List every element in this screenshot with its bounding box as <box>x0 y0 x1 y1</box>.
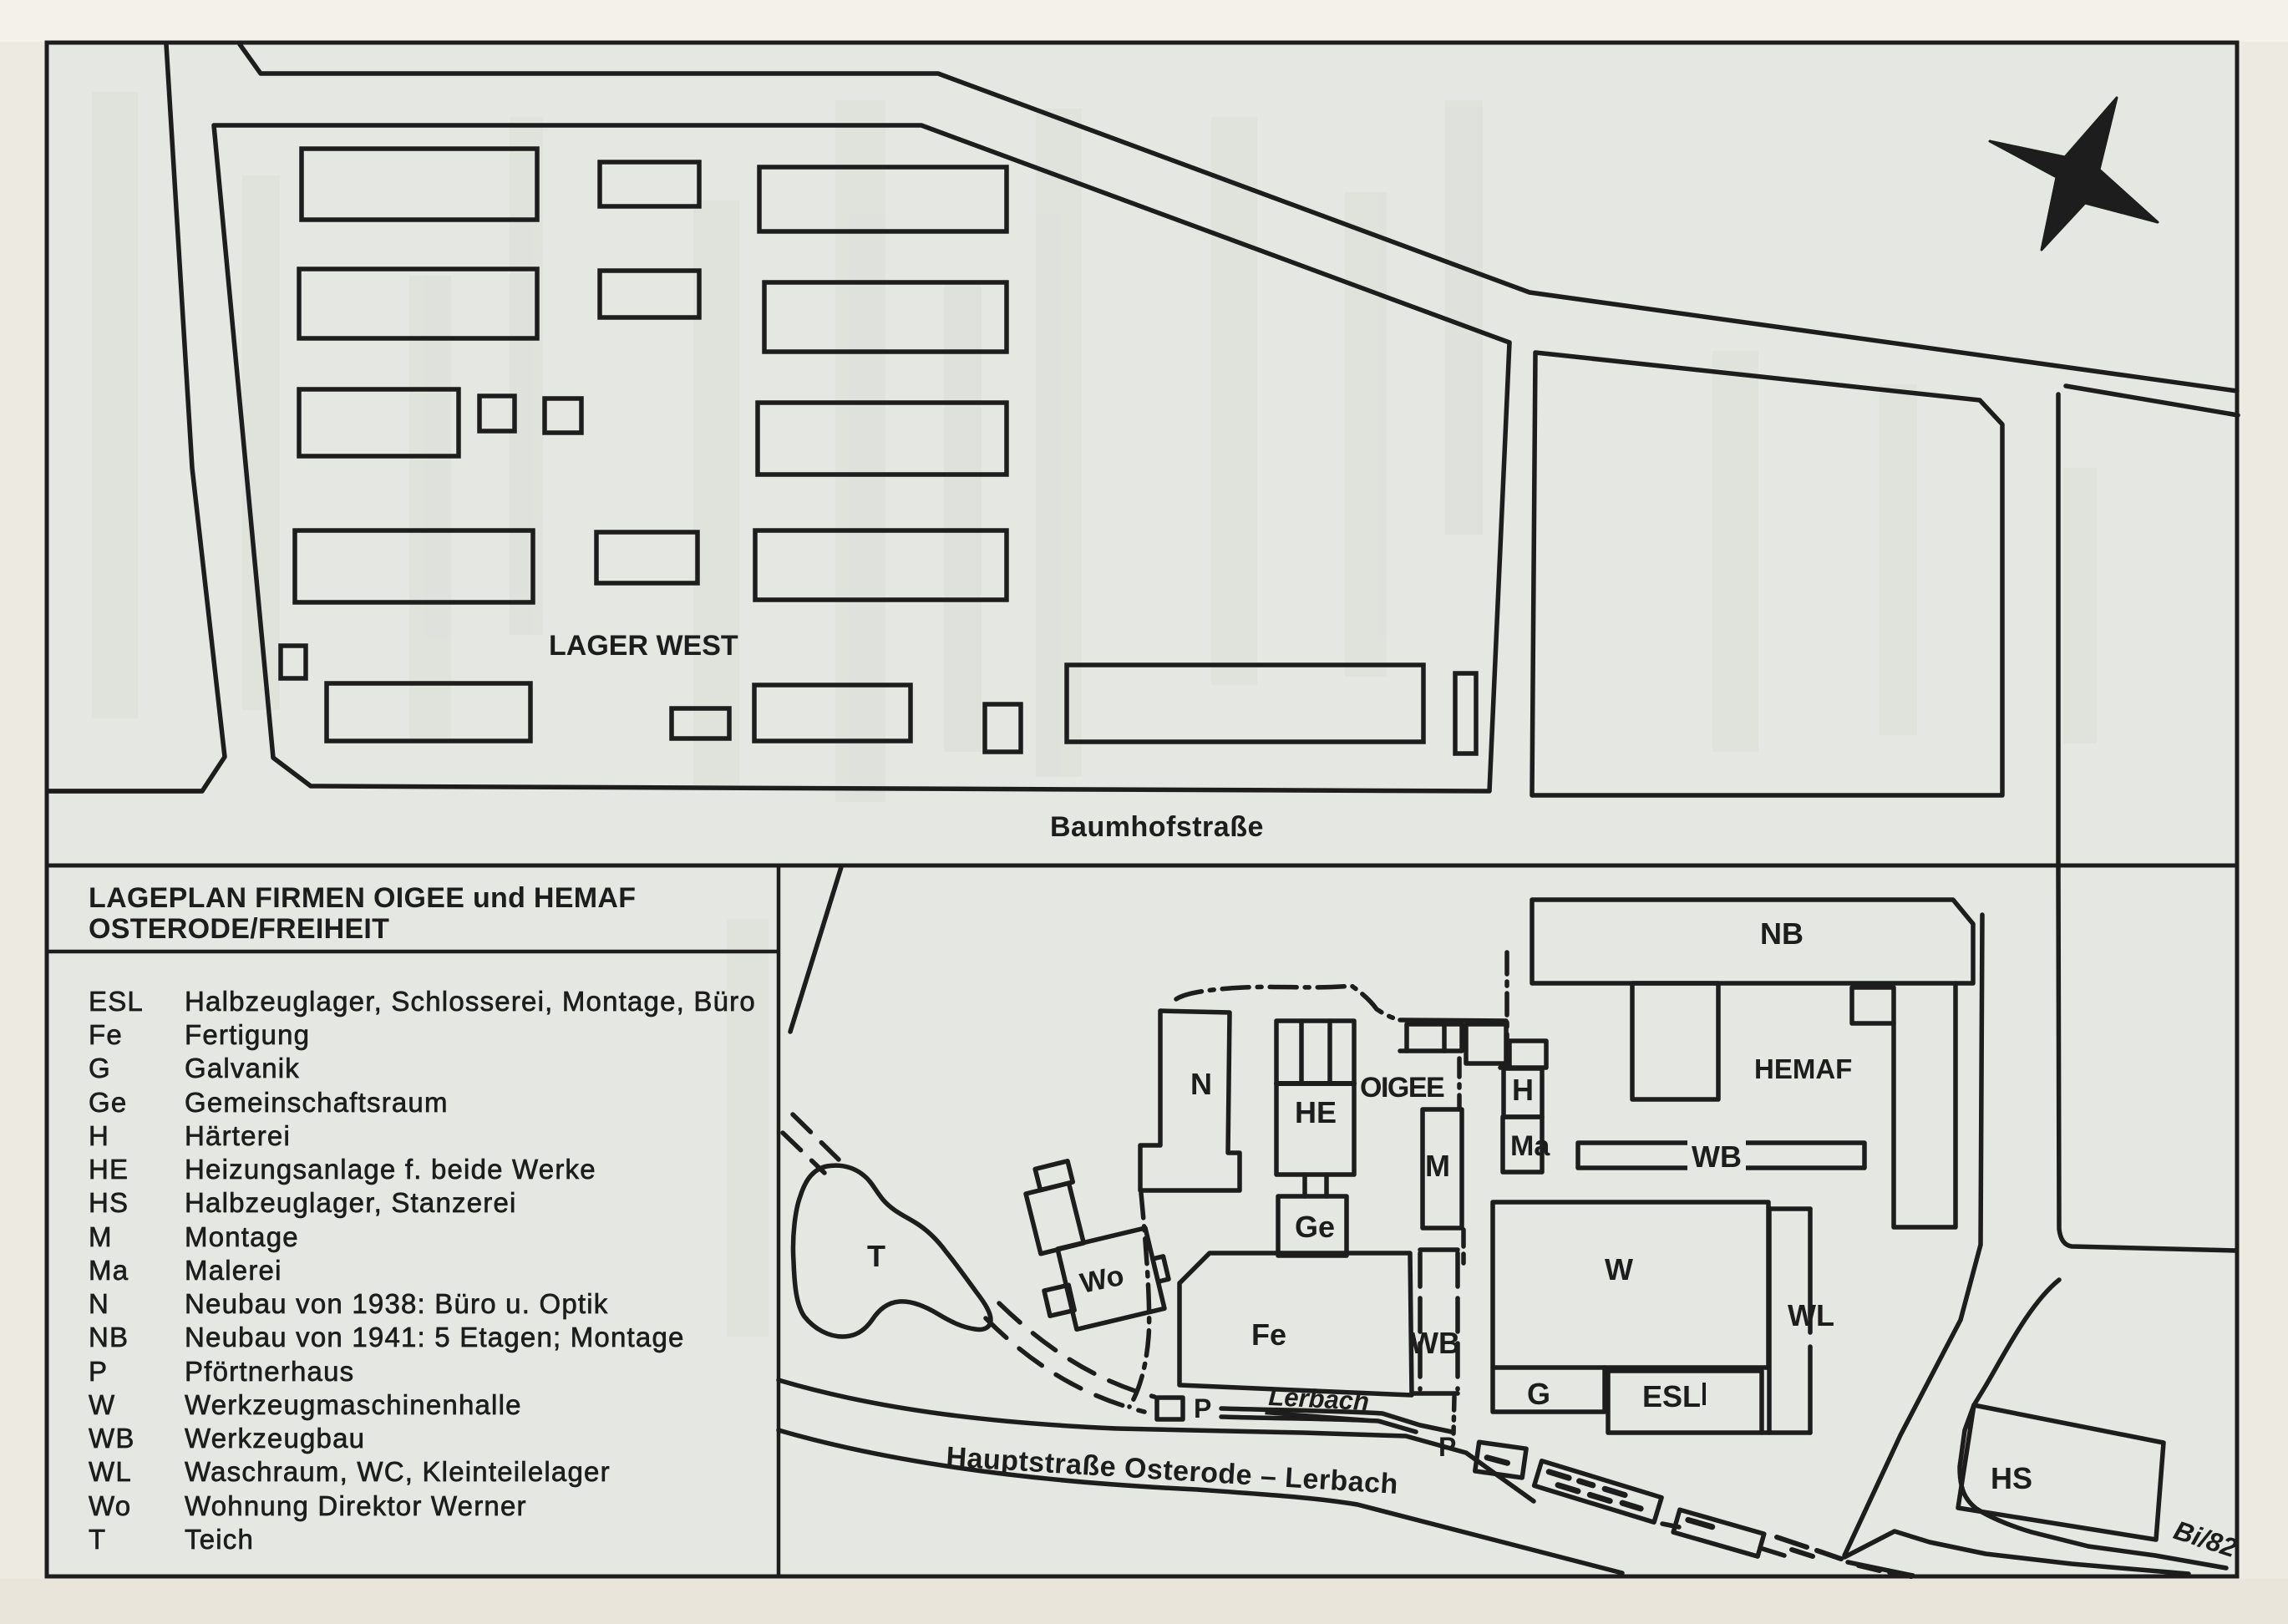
svg-text:G: G <box>89 1053 111 1084</box>
svg-text:P: P <box>1194 1393 1211 1424</box>
svg-text:OIGEE: OIGEE <box>1360 1072 1444 1104</box>
svg-text:HE: HE <box>1295 1095 1337 1129</box>
svg-text:Ma: Ma <box>89 1255 129 1286</box>
svg-text:N: N <box>1190 1067 1212 1101</box>
svg-text:Gemeinschaftsraum: Gemeinschaftsraum <box>185 1087 449 1118</box>
svg-text:ESL: ESL <box>89 986 144 1017</box>
svg-text:W: W <box>1605 1252 1633 1287</box>
svg-text:Halbzeuglager, Stanzerei: Halbzeuglager, Stanzerei <box>185 1187 517 1218</box>
svg-text:Fe: Fe <box>1251 1317 1286 1352</box>
svg-text:NB: NB <box>1760 916 1804 951</box>
svg-text:HEMAF: HEMAF <box>1754 1053 1852 1084</box>
svg-text:G: G <box>1527 1377 1550 1411</box>
svg-text:P: P <box>89 1356 108 1387</box>
svg-text:WB: WB <box>1410 1326 1460 1360</box>
svg-text:H: H <box>89 1120 109 1151</box>
svg-text:Neubau von 1941: 5 Etagen; Mon: Neubau von 1941: 5 Etagen; Montage <box>185 1322 685 1352</box>
svg-text:P: P <box>1438 1432 1456 1462</box>
svg-text:Fertigung: Fertigung <box>185 1019 310 1050</box>
svg-text:N: N <box>89 1288 109 1319</box>
svg-text:Heizungsanlage f. beide Werke: Heizungsanlage f. beide Werke <box>185 1154 596 1185</box>
svg-text:OSTERODE/FREIHEIT: OSTERODE/FREIHEIT <box>89 913 389 945</box>
svg-text:LAGER WEST: LAGER WEST <box>549 630 738 662</box>
svg-text:Waschraum, WC, Kleinteilelager: Waschraum, WC, Kleinteilelager <box>185 1456 611 1487</box>
svg-text:HE: HE <box>89 1154 129 1185</box>
svg-text:Werkzeugbau: Werkzeugbau <box>185 1423 365 1454</box>
svg-text:Werkzeugmaschinenhalle: Werkzeugmaschinenhalle <box>185 1389 522 1420</box>
svg-text:Galvanik: Galvanik <box>185 1053 300 1084</box>
svg-text:Baumhofstraße: Baumhofstraße <box>1050 811 1264 843</box>
svg-text:Halbzeuglager, Schlosserei, Mo: Halbzeuglager, Schlosserei, Montage, Bür… <box>185 986 756 1017</box>
svg-text:Malerei: Malerei <box>185 1255 282 1286</box>
svg-text:Lerbach: Lerbach <box>1268 1382 1370 1416</box>
svg-text:T: T <box>89 1524 106 1555</box>
svg-text:Teich: Teich <box>185 1524 254 1555</box>
svg-text:Neubau von 1938: Büro u. Optik: Neubau von 1938: Büro u. Optik <box>185 1288 608 1319</box>
svg-text:M: M <box>1425 1149 1450 1183</box>
svg-text:Ge: Ge <box>1295 1210 1335 1244</box>
svg-text:HS: HS <box>1991 1461 2032 1495</box>
svg-text:M: M <box>89 1221 113 1252</box>
svg-text:Wo: Wo <box>89 1490 131 1521</box>
svg-text:LAGEPLAN FIRMEN OIGEE und HEMA: LAGEPLAN FIRMEN OIGEE und HEMAF <box>89 882 636 914</box>
svg-text:WL: WL <box>89 1456 132 1487</box>
svg-text:Ge: Ge <box>89 1087 127 1118</box>
svg-text:HS: HS <box>89 1187 129 1218</box>
svg-text:Fe: Fe <box>89 1019 123 1050</box>
svg-text:WB: WB <box>89 1423 135 1454</box>
svg-text:WL: WL <box>1788 1298 1834 1332</box>
svg-text:Wohnung Direktor Werner: Wohnung Direktor Werner <box>185 1490 527 1521</box>
svg-text:Härterei: Härterei <box>185 1120 291 1151</box>
svg-text:H: H <box>1512 1073 1534 1107</box>
svg-text:Ma: Ma <box>1510 1130 1550 1162</box>
svg-text:ESL: ESL <box>1642 1379 1701 1413</box>
svg-text:Montage: Montage <box>185 1221 299 1252</box>
svg-text:NB: NB <box>89 1322 129 1352</box>
svg-text:W: W <box>89 1389 115 1420</box>
svg-text:Pförtnerhaus: Pförtnerhaus <box>185 1356 354 1387</box>
svg-text:WB: WB <box>1692 1139 1742 1174</box>
svg-text:T: T <box>867 1239 885 1273</box>
